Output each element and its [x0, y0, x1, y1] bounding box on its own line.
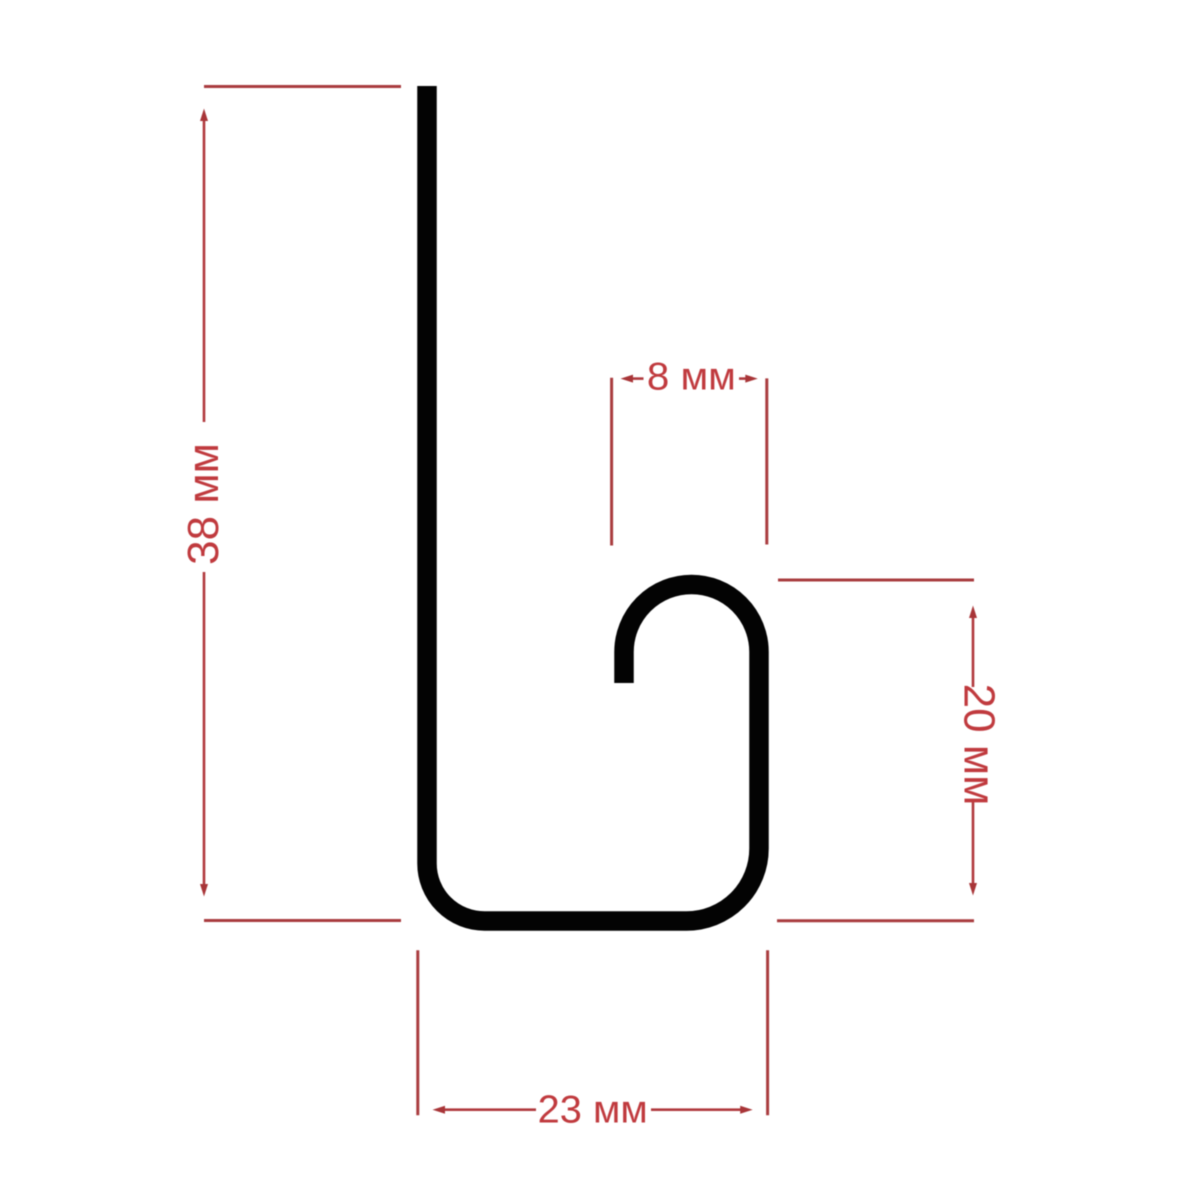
svg-text:20 мм: 20 мм: [955, 684, 1004, 806]
svg-text:38 мм: 38 мм: [179, 443, 228, 565]
svg-text:23 мм: 23 мм: [538, 1089, 648, 1132]
svg-text:8 мм: 8 мм: [647, 356, 736, 399]
